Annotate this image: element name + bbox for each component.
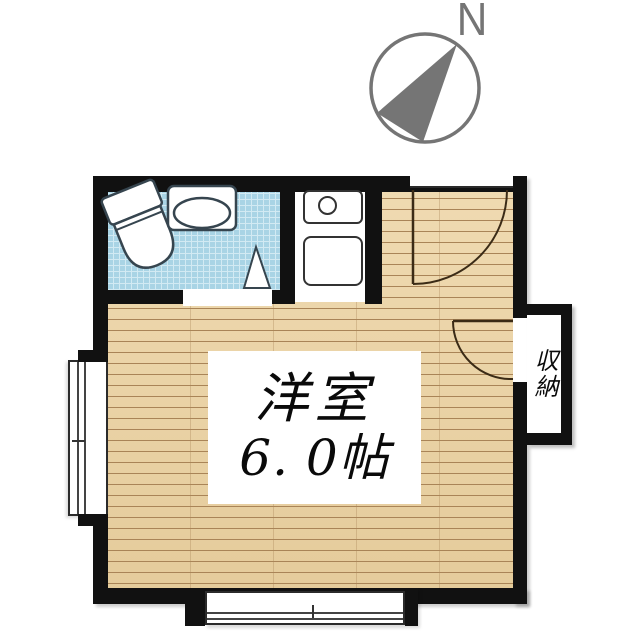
- compass-icon: [358, 20, 498, 160]
- window-latch-icon: [72, 440, 85, 442]
- window-glazing-line: [207, 612, 403, 614]
- closet-doorway: [513, 318, 527, 382]
- stove-burner-icon: [318, 196, 337, 215]
- closet-label: 収納: [527, 318, 561, 430]
- wall-bathroom-right: [280, 176, 295, 304]
- left-window-icon: [68, 360, 108, 516]
- window-latch-icon: [312, 605, 314, 618]
- entrance-doorway: [410, 176, 513, 188]
- window-glazing-line: [84, 362, 86, 514]
- window-glazing-line: [77, 362, 79, 514]
- window-jamb: [405, 588, 418, 626]
- window-jamb: [78, 514, 108, 526]
- bottom-window-icon: [205, 591, 405, 625]
- wall-kitchen-right: [365, 176, 382, 304]
- room-name: 洋室: [255, 368, 375, 430]
- floorplan-canvas: N 収納: [0, 0, 640, 640]
- window-jamb: [78, 350, 108, 362]
- window-jamb: [185, 588, 205, 626]
- room-size: 6. 0帖: [239, 430, 389, 488]
- wall-right: [513, 176, 527, 604]
- kitchen-sink-icon: [303, 236, 363, 286]
- bathroom-floor: [108, 188, 280, 290]
- room-label: 洋室 6. 0帖: [208, 351, 421, 504]
- bathroom-doorway: [183, 289, 272, 306]
- window-glazing-line: [207, 618, 403, 620]
